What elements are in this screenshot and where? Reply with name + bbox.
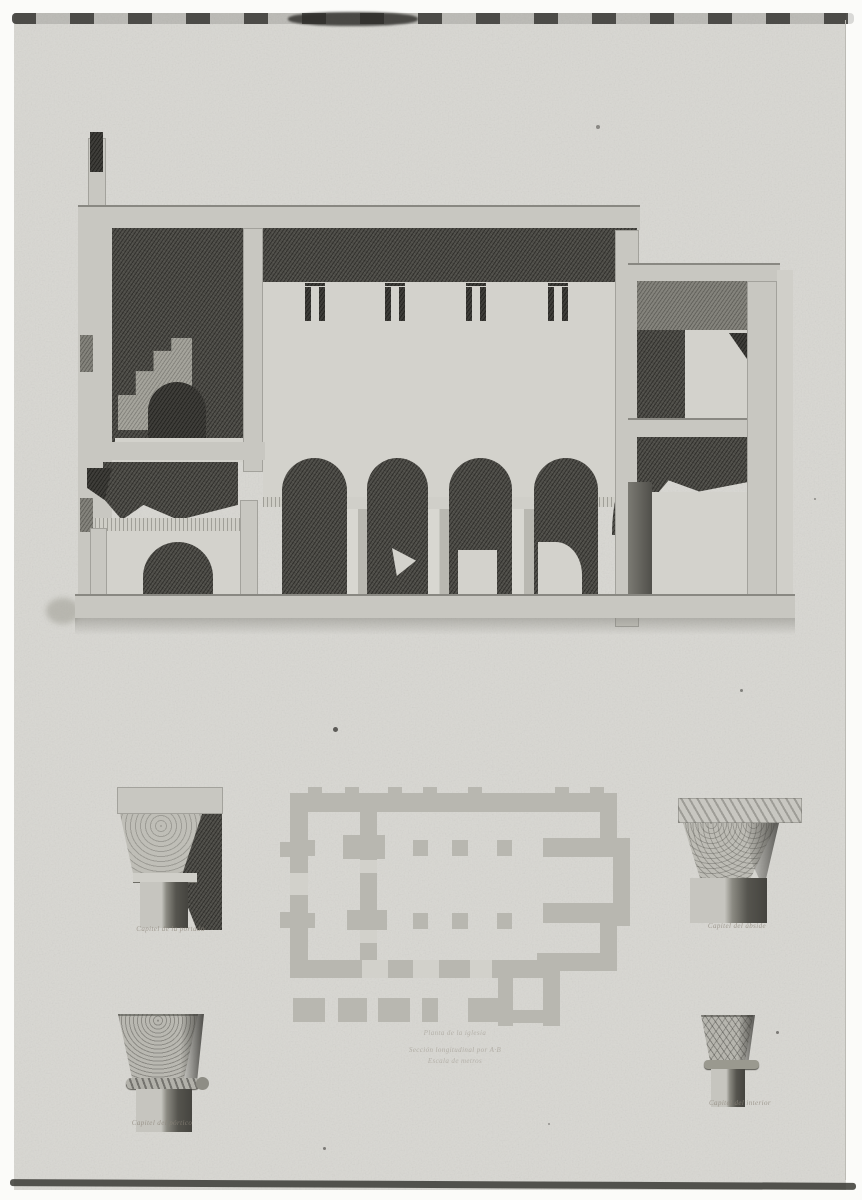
scanned-plate: { "plate": { "kind": "architectural engr… [0, 0, 862, 1200]
ground-line [75, 594, 795, 618]
arcade-column [512, 507, 534, 597]
plan-portico-pier [378, 998, 410, 1022]
capital-bottom-right-drawing [697, 1012, 767, 1110]
porch-impost-band [95, 518, 240, 531]
ink-speck [596, 125, 600, 129]
window-slit [480, 287, 486, 321]
ink-speck [323, 1147, 326, 1150]
porch-slab [95, 442, 265, 460]
window-lintel [466, 283, 486, 286]
window-slit [466, 287, 472, 321]
arcade-arch-2 [367, 458, 428, 597]
arcade-capital [345, 497, 369, 509]
annex-upper-shading [637, 281, 747, 330]
ink-speck [548, 1123, 550, 1125]
plan-se-corner [600, 923, 617, 970]
plan-portico-pier [338, 998, 367, 1022]
longitudinal-section-drawing [75, 130, 795, 635]
ink-speck [740, 689, 743, 692]
plan-caption-line2: Sección longitudinal por A·B [355, 1046, 555, 1054]
plan-chancel-connector [600, 812, 617, 840]
plan-pier-cross [343, 835, 385, 859]
arch-light-patch [458, 550, 497, 597]
ink-speck [776, 1031, 779, 1034]
plan-pier [452, 913, 468, 929]
capital-top-right-drawing [675, 795, 805, 927]
capital-shaft [690, 878, 767, 923]
window-slit [399, 287, 405, 321]
annex-roof-beam [628, 263, 780, 281]
capital-rope-knob [196, 1077, 209, 1090]
plan-south-gap [470, 960, 492, 978]
annex-lower-shading [637, 437, 750, 499]
window-slit [385, 287, 391, 321]
plan-west-buttress [280, 842, 292, 857]
capital-bell-shadow [180, 1014, 204, 1084]
floor-plan-drawing [280, 783, 640, 1033]
scan-edge-top-blob [288, 12, 418, 26]
plan-pier [497, 840, 512, 856]
arcade-arch-1 [282, 458, 347, 597]
capital-lintel [117, 787, 223, 814]
capital-bottom-left-caption: Capitel del pórtico [102, 1119, 222, 1127]
plan-portico-pier [422, 998, 438, 1022]
plan-west-door-gap [290, 873, 308, 895]
left-wall-notch [80, 335, 93, 372]
capital-bottom-right-caption: Capitel del interior [690, 1099, 790, 1107]
capital-top-left-caption: Capitel de la portada [108, 925, 233, 933]
annex-upper-dark-corner [637, 330, 685, 418]
capital-top-left-drawing [110, 785, 225, 935]
twin-window [466, 283, 488, 323]
window-slit [548, 287, 554, 321]
plan-south-gap [362, 960, 388, 978]
porch-left-column [90, 528, 107, 597]
twin-window [548, 283, 570, 323]
capital-shaft [140, 882, 188, 928]
plan-porch-south [498, 1010, 560, 1023]
nave-left-pier [243, 228, 263, 472]
window-slit [319, 287, 325, 321]
capital-top-right-caption: Capitel del ábside [682, 922, 792, 930]
plan-pier [280, 913, 315, 928]
plan-caption-line3: Escala de metros [380, 1057, 530, 1065]
annex-column-shadow [628, 482, 652, 597]
left-wall-notch [80, 498, 93, 532]
ground-shadow [75, 618, 795, 635]
plan-pier [497, 913, 512, 929]
plan-chancel-south [543, 903, 630, 923]
plan-transverse-gap [360, 930, 377, 943]
window-slit [562, 287, 568, 321]
plan-south-gap [413, 960, 439, 978]
capital-abacus [678, 798, 802, 823]
window-slit [305, 287, 311, 321]
arcade-column [428, 507, 449, 597]
twin-window [385, 283, 407, 323]
plan-pier [300, 840, 315, 856]
plan-portico-pier [293, 998, 325, 1022]
plan-pier [413, 840, 428, 856]
annex-outer-pier [777, 270, 793, 597]
chimney-cap [90, 132, 103, 172]
plan-transverse-gap [360, 860, 377, 873]
porch-roof-shading [103, 462, 238, 520]
plan-north-wall [290, 793, 617, 812]
plan-caption-line1: Planta de la iglesia [380, 1029, 530, 1037]
window-lintel [548, 283, 568, 286]
scan-edge-top [12, 13, 854, 24]
capital-rope-astragal [126, 1078, 200, 1089]
window-lintel [385, 283, 405, 286]
ink-speck [333, 727, 338, 732]
arcade-capital [426, 497, 451, 509]
ink-speck [814, 498, 816, 500]
plan-pier [413, 913, 428, 929]
window-lintel [305, 283, 325, 286]
roof-cornice [78, 205, 640, 230]
plan-pier [452, 840, 468, 856]
paper-right-edge-line [845, 20, 846, 1180]
annex-lower-wall [637, 492, 750, 597]
capital-astragal [704, 1060, 759, 1069]
capital-bottom-left-drawing [108, 1010, 218, 1132]
arcade-column [347, 507, 367, 597]
capital-astragal [133, 873, 197, 882]
plan-portico-pier [468, 998, 500, 1022]
twin-window [305, 283, 327, 323]
plan-pier-cross [347, 910, 387, 930]
niche-arch [148, 382, 206, 438]
arcade-capital [510, 497, 536, 509]
annex-right-wall [747, 281, 777, 597]
porch-right-column [240, 500, 258, 597]
